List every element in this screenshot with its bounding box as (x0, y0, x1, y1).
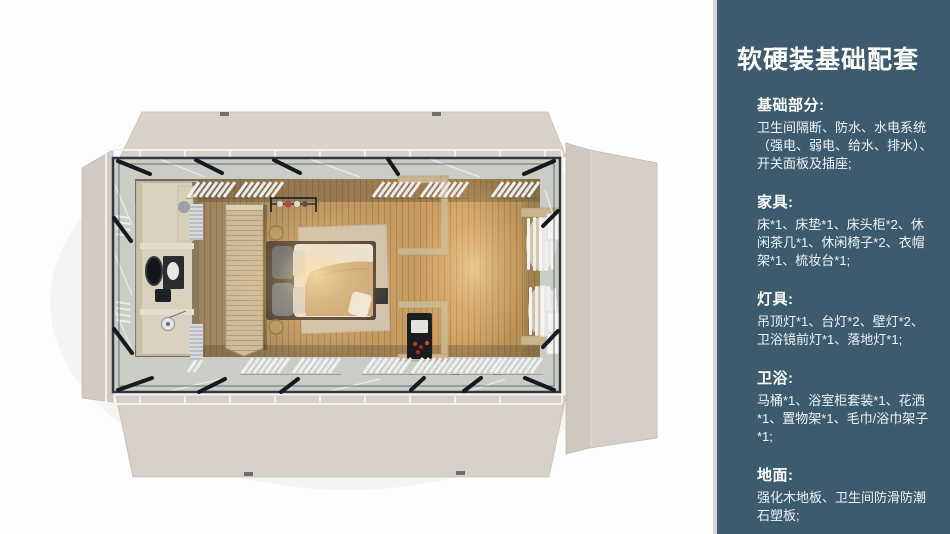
louvre-panel-silver (190, 324, 203, 360)
panel-title: 软硬装基础配套 (737, 40, 934, 76)
cabinet-art (416, 350, 420, 354)
cabinet-label (411, 320, 428, 333)
section-body: 马桶*1、浴室柜套装*1、花洒*1、置物架*1、毛巾/浴巾架子*1; (757, 392, 934, 446)
info-panel: 软硬装基础配套 基础部分: 卫生间隔断、防水、水电系统（强电、弱电、给水、排水）… (717, 0, 950, 534)
section-heading: 地面: (757, 464, 934, 485)
vanity-mirror (146, 257, 162, 285)
section-body: 吊顶灯*1、台灯*2、壁灯*2、卫浴镜前灯*1、落地灯*1; (757, 313, 934, 349)
section-heading: 卫浴: (757, 367, 934, 388)
floorplan-area (0, 0, 713, 534)
slide: 软硬装基础配套 基础部分: 卫生间隔断、防水、水电系统（强电、弱电、给水、排水）… (0, 0, 950, 534)
section-basics: 基础部分: 卫生间隔断、防水、水电系统（强电、弱电、给水、排水）、开关面板及插座… (757, 94, 934, 173)
section-furniture: 家具: 床*1、床垫*1、床头柜*2、休闲茶几*1、休闲椅子*2、衣帽架*1、梳… (757, 191, 934, 270)
section-body: 床*1、床垫*1、床头柜*2、休闲茶几*1、休闲椅子*2、衣帽架*1、梳妆台*1… (757, 216, 934, 270)
bathroom-shelf (140, 243, 194, 249)
louvre-panel-silver (190, 204, 203, 240)
section-heading: 灯具: (757, 288, 934, 309)
cabinet-art (425, 341, 429, 345)
section-heading: 家具: (757, 191, 934, 212)
section-bathroom: 卫浴: 马桶*1、浴室柜套装*1、花洒*1、置物架*1、毛巾/浴巾架子*1; (757, 367, 934, 446)
fold-out-panel-right (590, 150, 657, 448)
sink-basin (167, 262, 179, 280)
water-heater (178, 201, 190, 213)
panel-vent-mark (244, 472, 253, 476)
section-heading: 基础部分: (757, 94, 934, 115)
floorplan-render (0, 0, 713, 534)
cabinet-art (419, 345, 423, 349)
bathroom-wall-left (137, 182, 142, 355)
section-lighting: 灯具: 吊顶灯*1、台灯*2、壁灯*2、卫浴镜前灯*1、落地灯*1; (757, 288, 934, 349)
fold-out-panel-bottom (116, 396, 566, 477)
panel-vent-mark (456, 471, 465, 475)
section-flooring: 地面: 强化木地板、卫生间防滑防潮石塑板; (757, 464, 934, 525)
panel-vent-mark (432, 112, 441, 116)
fold-out-panel-left (82, 150, 113, 402)
bathroom-shelf (140, 309, 194, 315)
fold-out-panel-right-strip (566, 143, 590, 454)
section-body: 卫生间隔断、防水、水电系统（强电、弱电、给水、排水）、开关面板及插座; (757, 119, 934, 173)
shower-head-center (166, 322, 170, 326)
section-body: 强化木地板、卫生间防滑防潮石塑板; (757, 489, 934, 525)
bathroom (137, 182, 203, 360)
cabinet-art (413, 342, 417, 346)
panel-vent-mark (220, 112, 229, 116)
vanity-stool (155, 289, 171, 302)
